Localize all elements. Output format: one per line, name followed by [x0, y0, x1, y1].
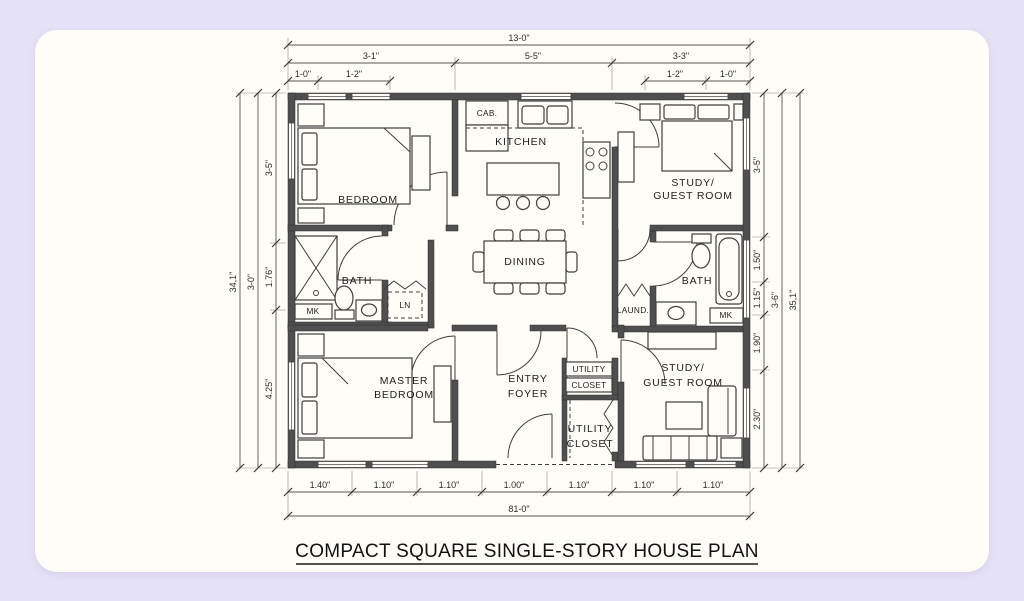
pillow	[664, 105, 695, 119]
label-mk-left: MK	[306, 306, 319, 316]
dresser	[412, 136, 430, 190]
dim-label: 81-0"	[508, 504, 529, 514]
dim-label: 1.10"	[569, 480, 590, 490]
bed	[662, 121, 732, 171]
side-table	[721, 438, 742, 458]
corridor-door	[618, 229, 650, 261]
dim-label: 3-5"	[752, 157, 762, 173]
toilet-tank	[692, 234, 711, 243]
room-label-study-bottom: GUEST ROOM	[643, 377, 723, 389]
stool	[517, 197, 530, 210]
laundry-bifold-door	[618, 284, 650, 296]
chair	[546, 230, 565, 241]
room-label-utility-lower: UTILITY	[568, 423, 613, 435]
room-label-utility-lower: CLOSET	[567, 438, 614, 450]
sofa	[643, 436, 717, 460]
room-label-utility-upper: CLOSET	[572, 380, 607, 390]
dim-label: 3-0"	[246, 274, 256, 290]
pillow	[302, 169, 317, 200]
room-label-dining: DINING	[504, 256, 546, 268]
floor-plan: 13-0" 3-1" 5-5" 3-3" 1-0" 1-2" 1-2" 1-0"…	[0, 0, 1024, 601]
dresser	[618, 132, 634, 182]
room-label-laundry: LAUND.	[617, 305, 649, 315]
pillow	[698, 105, 729, 119]
room-label-kitchen: KITCHEN	[495, 136, 547, 148]
label-linen: LN	[399, 300, 410, 310]
room-label-bath-left: BATH	[342, 275, 372, 287]
dim-label: 1-2"	[667, 69, 683, 79]
chair	[473, 252, 484, 272]
toilet	[335, 286, 353, 310]
dim-label: 1.10"	[634, 480, 655, 490]
toilet	[692, 244, 710, 268]
room-label-bath-right: BATH	[682, 275, 712, 287]
pillow	[302, 401, 317, 434]
dim-label: 1.90"	[752, 333, 762, 354]
dim-label: 1-0"	[720, 69, 736, 79]
chair	[566, 252, 577, 272]
dim-label: 1.10"	[439, 480, 460, 490]
toilet-tank	[335, 310, 354, 319]
study-top-furniture	[618, 104, 743, 182]
pillow	[302, 133, 317, 165]
sink-basin	[668, 307, 684, 320]
dim-label: 3-1"	[363, 51, 379, 61]
dim-label: 1.10"	[374, 480, 395, 490]
dim-label: 4.25"	[264, 379, 274, 400]
dresser	[434, 366, 451, 422]
dim-label: 1-0"	[295, 69, 311, 79]
room-label-entry: ENTRY	[508, 373, 547, 385]
bath-left-door	[338, 236, 382, 280]
bathtub-inner	[719, 238, 739, 300]
chair	[520, 230, 539, 241]
dimensions-right: 3-5" 1.50" 1.15" 1.90" 2.30" 3-6" 35,1"	[752, 89, 804, 472]
kitchen-furniture	[466, 101, 610, 225]
chair	[494, 230, 513, 241]
plan-title: COMPACT SQUARE SINGLE-STORY HOUSE PLAN	[295, 541, 759, 562]
desk	[648, 332, 716, 349]
nightstand	[298, 208, 324, 223]
sink-basin	[362, 304, 377, 316]
linen-bifold-door	[384, 281, 426, 289]
entry-inner-door	[497, 331, 541, 375]
chair	[546, 283, 565, 294]
nightstand	[640, 104, 660, 120]
dim-label: 1.40"	[310, 480, 331, 490]
utility-upper-door	[567, 328, 597, 358]
dim-label: 34,1"	[228, 272, 238, 293]
dimensions-bottom: 1.40" 1.10" 1.10" 1.00" 1.10" 1.10" 1.10…	[284, 471, 754, 520]
dim-label: 1.10"	[703, 480, 724, 490]
dim-label: 1.50"	[752, 250, 762, 271]
dim-label: 3-5"	[264, 160, 274, 176]
stove	[583, 142, 610, 198]
dim-label: 13-0"	[508, 33, 529, 43]
dim-label: 1.15"	[752, 288, 762, 309]
room-label-utility-upper: UTILITY	[573, 364, 606, 374]
dim-label: 1-2"	[346, 69, 362, 79]
dim-label: 3-6"	[770, 292, 780, 308]
sink-basin	[522, 106, 544, 124]
front-door	[508, 414, 552, 458]
title-block: COMPACT SQUARE SINGLE-STORY HOUSE PLAN	[295, 541, 759, 564]
room-label-bedroom: BEDROOM	[338, 194, 398, 206]
nightstand	[734, 104, 743, 120]
dim-label: 1.00"	[504, 480, 525, 490]
room-label-master: BEDROOM	[374, 389, 434, 401]
dim-label: 5-5"	[525, 51, 541, 61]
sink-basin	[547, 106, 568, 124]
nightstand	[298, 440, 324, 458]
chair	[520, 283, 539, 294]
dim-label: 35,1"	[788, 290, 798, 311]
dim-label: 2.30"	[752, 409, 762, 430]
study-bottom-furniture	[643, 332, 742, 460]
stool	[497, 197, 510, 210]
stool	[537, 197, 550, 210]
dim-label: 3-3"	[673, 51, 689, 61]
label-cab: CAB.	[477, 108, 498, 118]
room-label-study-bottom: STUDY/	[661, 362, 704, 374]
armchair	[708, 386, 736, 436]
page-background: 13-0" 3-1" 5-5" 3-3" 1-0" 1-2" 1-2" 1-0"…	[0, 0, 1024, 601]
pillow	[302, 363, 317, 397]
dimensions-top: 13-0" 3-1" 5-5" 3-3" 1-0" 1-2" 1-2" 1-0"	[284, 33, 754, 90]
dimensions-left: 34,1" 3-0" 3-5" 1.76" 4.25"	[228, 89, 286, 472]
room-label-master: MASTER	[380, 375, 429, 387]
coffee-table	[666, 402, 702, 429]
room-label-entry: FOYER	[508, 388, 548, 400]
kitchen-island	[487, 163, 559, 195]
chair	[494, 283, 513, 294]
nightstand	[298, 104, 324, 126]
label-mk-right: MK	[719, 310, 732, 320]
room-label-study-top: GUEST ROOM	[653, 190, 733, 202]
nightstand	[298, 334, 324, 356]
room-label-study-top: STUDY/	[671, 177, 714, 189]
dim-label: 1.76"	[264, 267, 274, 288]
